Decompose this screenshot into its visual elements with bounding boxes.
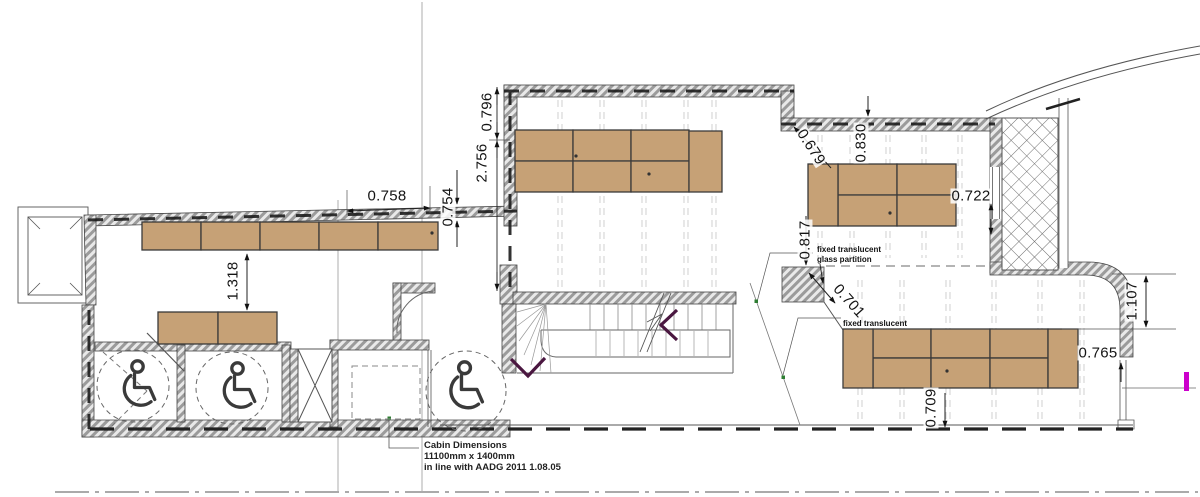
shaft-crosshatch: [1002, 118, 1058, 270]
desk: [158, 312, 218, 344]
desk: [515, 161, 573, 192]
green-setting-out-markers: [388, 300, 786, 421]
desk: [142, 222, 201, 250]
dimension-label-0830: 0.830: [854, 122, 869, 163]
desk: [631, 161, 689, 192]
desk: [1048, 329, 1078, 388]
glass-partition-note-lower: fixed translucent: [843, 320, 907, 328]
desk: [838, 164, 897, 195]
cabin-note-line3: in line with AADG 2011 1.08.05: [424, 463, 561, 473]
desk: [843, 329, 873, 388]
dimension-label-1107: 1.107: [1125, 280, 1140, 321]
dimension-label-0758: 0.758: [366, 189, 407, 204]
right-window: [1118, 360, 1134, 429]
curved-facade: [986, 46, 1200, 119]
desk: [873, 329, 931, 358]
desk: [689, 131, 722, 192]
desk: [808, 164, 838, 226]
window-opening: [990, 167, 1002, 219]
desk: [201, 222, 260, 250]
cabin-note-line1: Cabin Dimensions: [424, 441, 507, 451]
floor-plan: 0.758 0.754 0.796 2.756 1.318 0.679 0.83…: [0, 0, 1200, 497]
desk: [931, 358, 990, 388]
floor-plan-drawing: [0, 0, 1200, 497]
desk: [990, 329, 1048, 358]
wheelchair-icon: [224, 363, 254, 407]
desk: [838, 195, 897, 226]
staircase: [517, 293, 733, 373]
desk: [378, 222, 438, 250]
desk: [573, 130, 631, 161]
dimension-label-0765: 0.765: [1077, 346, 1118, 361]
turning-circle: [196, 352, 268, 424]
desk: [931, 329, 990, 358]
magenta-marker: [1184, 372, 1189, 391]
desk: [873, 358, 931, 388]
dimension-label-0722: 0.722: [950, 189, 991, 204]
dimension-label-0796: 0.796: [480, 91, 495, 132]
dimension-label-0754: 0.754: [441, 186, 456, 227]
dimension-label-2756: 2.756: [475, 142, 490, 183]
wheelchair-icon: [451, 362, 482, 408]
desk: [897, 195, 956, 226]
cabin-note-line2: 11100mm x 1400mm: [424, 452, 515, 462]
desk: [897, 164, 956, 195]
desk: [319, 222, 378, 250]
desk: [573, 161, 631, 192]
riser-box: [298, 349, 332, 422]
dimension-label-0817: 0.817: [798, 219, 813, 260]
dimension-label-0709: 0.709: [924, 387, 939, 428]
desk: [990, 358, 1048, 388]
left-chevron-icon: [661, 310, 677, 340]
door-swings: [103, 291, 433, 426]
glass-partition-note-line1: fixed translucent: [817, 246, 881, 254]
desk: [218, 312, 277, 344]
glass-partition-note-line2: glass partition: [817, 256, 872, 264]
desk: [515, 130, 573, 161]
window-box: [18, 207, 88, 303]
desk: [260, 222, 319, 250]
dimension-label-1318: 1.318: [226, 260, 241, 301]
desk: [631, 130, 689, 161]
shaft-door-frame: [1059, 98, 1068, 268]
